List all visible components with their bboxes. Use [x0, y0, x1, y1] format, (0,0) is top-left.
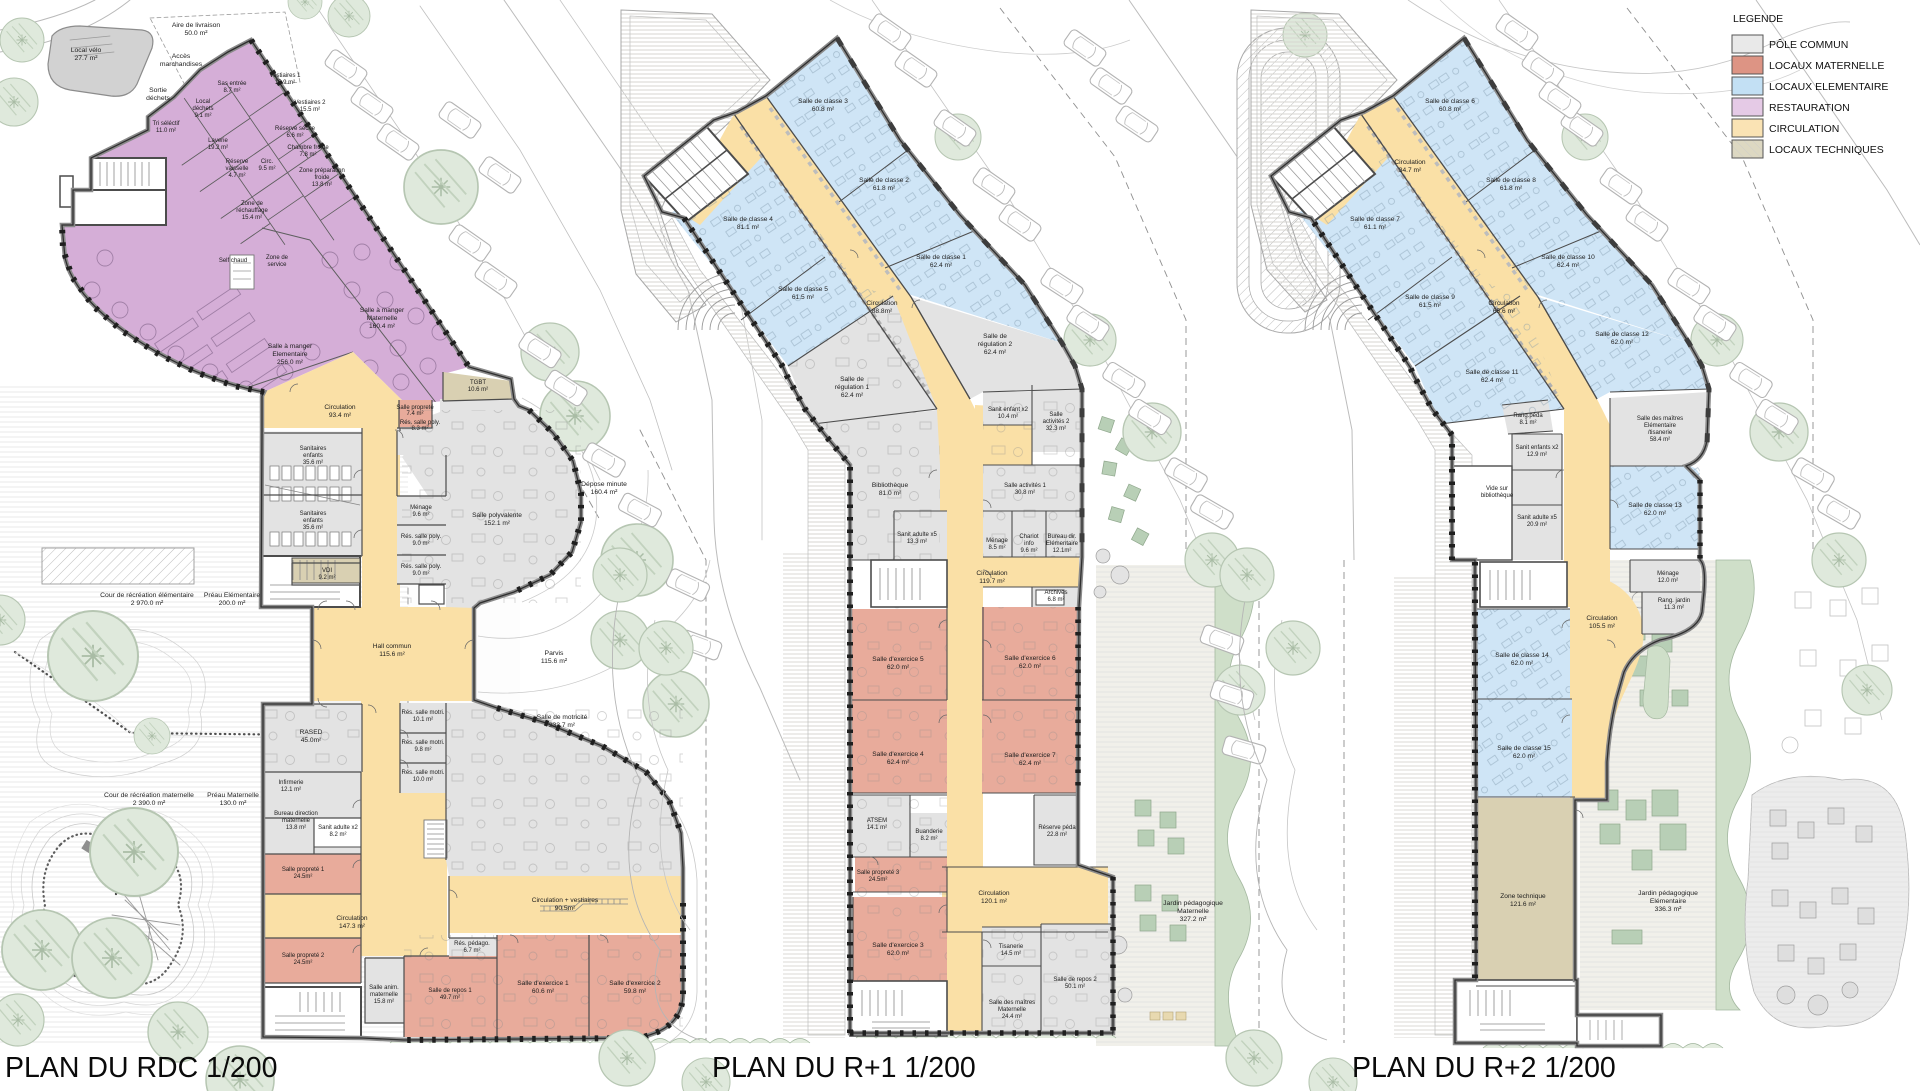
svg-text:Vestiaires 2: Vestiaires 2 [294, 100, 326, 106]
svg-text:Salle de classe 14: Salle de classe 14 [1495, 652, 1549, 659]
svg-text:CIRCULATION: CIRCULATION [1769, 123, 1839, 135]
svg-text:115.6 m²: 115.6 m² [379, 651, 405, 658]
svg-text:6.6 m²: 6.6 m² [286, 133, 303, 139]
svg-text:65.6 m²: 65.6 m² [1493, 308, 1516, 315]
svg-text:maternelle: maternelle [282, 818, 311, 824]
svg-text:Salle propreté 2: Salle propreté 2 [282, 953, 325, 959]
svg-text:Ménage: Ménage [986, 538, 1008, 544]
svg-text:62.0 m²: 62.0 m² [1611, 339, 1634, 346]
svg-text:10.4 m²: 10.4 m² [998, 414, 1018, 420]
svg-text:Salle des maîtres: Salle des maîtres [1637, 416, 1683, 422]
svg-text:27.7 m²: 27.7 m² [74, 55, 98, 62]
svg-text:32.3 m²: 32.3 m² [1046, 426, 1066, 432]
svg-text:Circulation: Circulation [336, 915, 367, 922]
svg-text:Rés. pédago.: Rés. pédago. [454, 941, 490, 947]
svg-text:147.3 m²: 147.3 m² [339, 923, 366, 930]
svg-text:Salle de classe 7: Salle de classe 7 [1350, 216, 1400, 223]
svg-text:200.0 m²: 200.0 m² [219, 600, 247, 607]
svg-text:62.4 m²: 62.4 m² [1481, 377, 1504, 384]
svg-text:9.2 m²: 9.2 m² [318, 575, 335, 581]
svg-text:120.1 m²: 120.1 m² [981, 898, 1008, 905]
svg-text:déchets: déchets [192, 106, 213, 112]
svg-text:maternelle: maternelle [370, 992, 399, 998]
svg-text:Accès: Accès [172, 53, 191, 60]
svg-text:8.1 m²: 8.1 m² [1519, 420, 1536, 426]
svg-text:62.4 m²: 62.4 m² [1557, 262, 1580, 269]
svg-text:RASED: RASED [300, 729, 323, 736]
svg-text:Bibliothèque: Bibliothèque [872, 482, 909, 489]
svg-text:service: service [267, 262, 287, 268]
svg-text:Circulation: Circulation [976, 570, 1007, 577]
svg-text:Sas entrée: Sas entrée [217, 81, 247, 87]
svg-text:14.1 m²: 14.1 m² [867, 825, 887, 831]
svg-text:327.2 m²: 327.2 m² [1180, 916, 1208, 923]
svg-text:13.3 m²: 13.3 m² [907, 539, 927, 545]
svg-text:Dépose minute: Dépose minute [581, 481, 627, 488]
svg-text:Salle d'exercice 2: Salle d'exercice 2 [609, 980, 661, 987]
svg-text:105.5 m²: 105.5 m² [1589, 623, 1616, 630]
svg-text:info: info [1024, 541, 1034, 547]
svg-text:activités 2: activités 2 [1043, 419, 1070, 425]
svg-text:Circulation: Circulation [1586, 615, 1617, 622]
svg-text:Préau Maternelle: Préau Maternelle [207, 792, 259, 799]
svg-text:Salle de classe 2: Salle de classe 2 [859, 177, 909, 184]
svg-text:12.1m²: 12.1m² [1053, 548, 1072, 554]
svg-text:PLAN DU R+1 1/200: PLAN DU R+1 1/200 [712, 1052, 976, 1084]
svg-text:Sanit adulte x2: Sanit adulte x2 [318, 825, 358, 831]
svg-text:11.3 m²: 11.3 m² [1664, 605, 1684, 611]
svg-text:froide: froide [314, 175, 330, 181]
svg-text:LEGENDE: LEGENDE [1733, 13, 1783, 25]
svg-text:bibliothèque: bibliothèque [1481, 493, 1514, 499]
svg-text:19.2 m²: 19.2 m² [208, 145, 228, 151]
svg-text:Salle activités 1: Salle activités 1 [1004, 483, 1046, 489]
svg-text:9.1 m²: 9.1 m² [194, 113, 211, 119]
svg-text:Salle à manger: Salle à manger [360, 307, 405, 314]
svg-text:Rés. salle motri.: Rés. salle motri. [401, 770, 444, 776]
svg-text:81.0 m²: 81.0 m² [879, 490, 902, 497]
svg-text:Parvis: Parvis [545, 650, 564, 657]
svg-text:ATSEM: ATSEM [867, 818, 887, 824]
svg-text:Zone de: Zone de [241, 201, 264, 207]
svg-text:Salle de classe 13: Salle de classe 13 [1628, 502, 1682, 509]
svg-text:VDI: VDI [322, 568, 332, 574]
svg-text:62.0 m²: 62.0 m² [1513, 753, 1536, 760]
svg-text:Salle d'exercice 1: Salle d'exercice 1 [517, 980, 569, 987]
svg-text:61.1 m²: 61.1 m² [1364, 224, 1387, 231]
svg-text:Vestiaires 1: Vestiaires 1 [269, 73, 301, 79]
svg-text:réchauffage: réchauffage [236, 208, 268, 214]
svg-text:Sanit adulte x5: Sanit adulte x5 [897, 532, 937, 538]
svg-text:9.6 m²: 9.6 m² [412, 512, 429, 518]
svg-text:61.8 m²: 61.8 m² [1500, 185, 1523, 192]
svg-text:Elémentaire: Elémentaire [1644, 423, 1677, 429]
svg-text:9.5 m²: 9.5 m² [258, 166, 275, 172]
svg-text:Sanitaires: Sanitaires [300, 446, 327, 452]
svg-text:Local vélo: Local vélo [71, 47, 102, 54]
svg-text:Hall commun: Hall commun [373, 643, 412, 650]
svg-text:Circulation: Circulation [866, 300, 897, 307]
svg-text:35.6 m²: 35.6 m² [303, 460, 323, 466]
svg-text:Salle anim.: Salle anim. [369, 985, 399, 991]
svg-text:Réserve séche: Réserve séche [275, 126, 316, 132]
svg-text:2 970.0 m²: 2 970.0 m² [131, 600, 164, 607]
svg-text:Salle de classe 8: Salle de classe 8 [1486, 177, 1536, 184]
svg-text:Vide sur: Vide sur [1486, 486, 1508, 492]
svg-text:10.0 m²: 10.0 m² [413, 777, 433, 783]
svg-text:59.8 m²: 59.8 m² [624, 988, 647, 995]
svg-text:13.8 m²: 13.8 m² [286, 825, 306, 831]
svg-text:Rés. salle motri.: Rés. salle motri. [401, 740, 444, 746]
svg-text:Elementaire: Elementaire [272, 351, 308, 358]
svg-text:62.0 m²: 62.0 m² [887, 950, 910, 957]
svg-text:50.1 m²: 50.1 m² [1065, 984, 1085, 990]
svg-text:81.1 m²: 81.1 m² [737, 224, 760, 231]
svg-text:15.8 m²: 15.8 m² [374, 999, 394, 1005]
svg-text:Elémentaire: Elémentaire [1650, 898, 1686, 905]
svg-text:9.0 m²: 9.0 m² [412, 541, 429, 547]
svg-text:Salle de classe 4: Salle de classe 4 [723, 216, 773, 223]
svg-text:2 390.0 m²: 2 390.0 m² [133, 800, 166, 807]
svg-text:34.7 m²: 34.7 m² [1399, 167, 1422, 174]
svg-text:10.1 m²: 10.1 m² [413, 717, 433, 723]
svg-text:Maternelle: Maternelle [1177, 908, 1209, 915]
svg-text:Salle d'exercice 4: Salle d'exercice 4 [872, 751, 924, 758]
svg-text:256.0 m²: 256.0 m² [277, 359, 304, 366]
svg-text:Bureau dir.: Bureau dir. [1047, 534, 1076, 540]
svg-text:62.0 m²: 62.0 m² [887, 664, 910, 671]
svg-text:Buanderie: Buanderie [915, 829, 943, 835]
svg-text:121.6 m²: 121.6 m² [1510, 901, 1537, 908]
svg-text:Rés. salle poly.: Rés. salle poly. [401, 564, 442, 570]
svg-text:9.6 m²: 9.6 m² [1020, 548, 1037, 554]
svg-text:12.9 m²: 12.9 m² [1527, 452, 1547, 458]
svg-text:6.7 m²: 6.7 m² [463, 948, 480, 954]
svg-text:Local: Local [196, 99, 210, 105]
svg-text:PLAN DU RDC 1/200: PLAN DU RDC 1/200 [5, 1052, 277, 1084]
svg-text:Sanit enfant x2: Sanit enfant x2 [988, 407, 1029, 413]
svg-text:35.6 m²: 35.6 m² [303, 525, 323, 531]
svg-text:Salle de classe 9: Salle de classe 9 [1405, 294, 1455, 301]
svg-text:60.8 m²: 60.8 m² [1439, 106, 1462, 113]
svg-text:Zone technique: Zone technique [1500, 893, 1546, 900]
svg-text:Circulation: Circulation [978, 890, 1009, 897]
svg-text:Réserve péda: Réserve péda [1038, 825, 1076, 831]
svg-text:49.7 m²: 49.7 m² [440, 995, 460, 1001]
svg-text:Rang.péda: Rang.péda [1513, 413, 1543, 419]
svg-text:Laverie: Laverie [208, 138, 228, 144]
svg-text:119.7 m²: 119.7 m² [979, 578, 1005, 585]
svg-text:Salle de repos 2: Salle de repos 2 [1053, 977, 1097, 983]
svg-text:Rés. salle poly.: Rés. salle poly. [401, 534, 442, 540]
svg-text:Infirmerie: Infirmerie [278, 780, 304, 786]
svg-text:62.4 m²: 62.4 m² [887, 759, 910, 766]
svg-text:Circulation: Circulation [1488, 300, 1519, 307]
svg-text:4.7 m²: 4.7 m² [228, 173, 245, 179]
svg-text:Chambre froide: Chambre froide [287, 145, 329, 151]
svg-text:8.3 m²: 8.3 m² [411, 426, 428, 432]
svg-text:Salle: Salle [1049, 412, 1063, 418]
svg-text:8.7 m²: 8.7 m² [223, 88, 240, 94]
svg-text:45.0m²: 45.0m² [301, 737, 322, 744]
svg-text:Rang. jardin: Rang. jardin [1658, 598, 1690, 604]
svg-text:Salle de classe 15: Salle de classe 15 [1497, 745, 1551, 752]
svg-text:Jardin pédagogique: Jardin pédagogique [1638, 890, 1698, 897]
svg-text:Salle propreté 3: Salle propreté 3 [857, 870, 900, 876]
svg-text:8.2 m²: 8.2 m² [920, 836, 937, 842]
svg-text:Salle de repos 1: Salle de repos 1 [428, 988, 472, 994]
svg-text:8.2 m²: 8.2 m² [329, 832, 346, 838]
svg-text:Circulation: Circulation [1394, 159, 1425, 166]
svg-text:Salle de classe 10: Salle de classe 10 [1541, 254, 1595, 261]
svg-text:24.5m²: 24.5m² [294, 874, 313, 880]
svg-text:RESTAURATION: RESTAURATION [1769, 102, 1850, 114]
svg-text:Salle de: Salle de [840, 376, 864, 383]
svg-text:Salle polyvalente: Salle polyvalente [472, 512, 522, 519]
svg-text:130.0 m²: 130.0 m² [220, 800, 248, 807]
svg-text:62.4 m²: 62.4 m² [930, 262, 953, 269]
svg-text:Salle de classe 1: Salle de classe 1 [916, 254, 966, 261]
svg-text:régulation 2: régulation 2 [978, 341, 1013, 348]
svg-text:22.8 m²: 22.8 m² [1047, 832, 1067, 838]
svg-text:152.1 m²: 152.1 m² [484, 520, 511, 527]
svg-text:Zone de: Zone de [266, 255, 289, 261]
svg-text:15.5 m²: 15.5 m² [300, 107, 320, 113]
svg-text:336.3 m²: 336.3 m² [1655, 906, 1683, 913]
svg-text:160.4 m²: 160.4 m² [591, 489, 619, 496]
svg-text:24.5m²: 24.5m² [869, 877, 888, 883]
svg-text:Chariot: Chariot [1019, 534, 1039, 540]
svg-text:Ménage: Ménage [1657, 571, 1679, 577]
svg-text:12.1 m²: 12.1 m² [281, 787, 301, 793]
svg-text:Circulation: Circulation [324, 404, 355, 411]
svg-text:9.0 m²: 9.0 m² [412, 571, 429, 577]
svg-text:62.4 m²: 62.4 m² [984, 349, 1007, 356]
svg-text:Sanit enfants x2: Sanit enfants x2 [1515, 445, 1559, 451]
svg-text:Sortie: Sortie [149, 87, 167, 94]
svg-text:61.8 m²: 61.8 m² [873, 185, 896, 192]
svg-text:61.5 m²: 61.5 m² [1419, 302, 1442, 309]
svg-text:Cour de récréation maternelle: Cour de récréation maternelle [104, 792, 194, 799]
svg-text:marchandises: marchandises [160, 61, 203, 68]
svg-text:115.6 m²: 115.6 m² [541, 658, 568, 665]
svg-text:Salle d'exercice 7: Salle d'exercice 7 [1004, 752, 1056, 759]
svg-text:12.0 m²: 12.0 m² [1658, 578, 1678, 584]
svg-text:62.4 m²: 62.4 m² [841, 392, 864, 399]
svg-text:11.0 m²: 11.0 m² [156, 128, 176, 134]
svg-text:9.8 m²: 9.8 m² [414, 747, 431, 753]
svg-text:50.0 m²: 50.0 m² [184, 30, 208, 37]
svg-text:61.5 m²: 61.5 m² [792, 294, 815, 301]
svg-text:Self chaud: Self chaud [219, 258, 247, 264]
svg-text:PÔLE COMMUN: PÔLE COMMUN [1769, 38, 1848, 51]
svg-text:Tri séléctif: Tri séléctif [152, 121, 179, 127]
svg-text:Sanit adulte x5: Sanit adulte x5 [1517, 515, 1557, 521]
svg-text:LOCAUX MATERNELLE: LOCAUX MATERNELLE [1769, 60, 1884, 72]
svg-text:6.8 m²: 6.8 m² [1047, 597, 1064, 603]
svg-text:8.5 m²: 8.5 m² [988, 545, 1005, 551]
svg-text:Salle de classe 12: Salle de classe 12 [1595, 331, 1649, 338]
svg-text:enfants: enfants [303, 453, 323, 459]
svg-text:Salle d'exercice 3: Salle d'exercice 3 [872, 942, 924, 949]
svg-text:Salle de classe 6: Salle de classe 6 [1425, 98, 1475, 105]
svg-text:Salle de classe 3: Salle de classe 3 [798, 98, 848, 105]
svg-text:Maternelle: Maternelle [998, 1007, 1027, 1013]
svg-text:TGBT: TGBT [470, 380, 486, 386]
svg-text:Maternelle: Maternelle [367, 315, 398, 322]
svg-text:233.7 m²: 233.7 m² [549, 722, 576, 729]
svg-text:Jardin pédagogique: Jardin pédagogique [1163, 900, 1223, 907]
svg-text:62.0 m²: 62.0 m² [1019, 663, 1042, 670]
svg-text:30.8 m²: 30.8 m² [1015, 490, 1035, 496]
svg-text:LOCAUX ELEMENTAIRE: LOCAUX ELEMENTAIRE [1769, 81, 1888, 93]
svg-text:vaisselle: vaisselle [225, 166, 249, 172]
svg-text:régulation 1: régulation 1 [835, 384, 870, 391]
svg-text:15.4 m²: 15.4 m² [242, 215, 262, 221]
svg-text:déchets: déchets [146, 95, 170, 102]
svg-text:15.9 m²: 15.9 m² [275, 80, 295, 86]
svg-text:Salle propreté 1: Salle propreté 1 [282, 867, 325, 873]
svg-text:60.6 m²: 60.6 m² [532, 988, 555, 995]
svg-text:20.9 m²: 20.9 m² [1527, 522, 1547, 528]
svg-text:14.5 m²: 14.5 m² [1001, 951, 1021, 957]
svg-text:Rés. salle motri.: Rés. salle motri. [401, 710, 444, 716]
svg-text:Cour de récréation élémentaire: Cour de récréation élémentaire [100, 592, 194, 599]
svg-text:Zone préparation: Zone préparation [299, 168, 345, 174]
svg-text:Aire de livraison: Aire de livraison [172, 22, 221, 29]
svg-text:10.6 m²: 10.6 m² [468, 387, 488, 393]
svg-text:PLAN DU R+2 1/200: PLAN DU R+2 1/200 [1352, 1052, 1616, 1084]
svg-text:Archives: Archives [1044, 590, 1067, 596]
svg-text:Sanitaires: Sanitaires [300, 511, 327, 517]
svg-text:enfants: enfants [303, 518, 323, 524]
svg-text:88.8m²: 88.8m² [872, 308, 893, 315]
svg-text:Elémentaire: Elémentaire [1046, 541, 1079, 547]
svg-text:7.8 m²: 7.8 m² [299, 152, 316, 158]
svg-text:Circulation + vestiaires: Circulation + vestiaires [532, 897, 599, 904]
svg-text:Bureau direction: Bureau direction [274, 811, 318, 817]
svg-text:13.8 m²: 13.8 m² [312, 182, 332, 188]
svg-text:7.4 m²: 7.4 m² [406, 411, 423, 417]
svg-text:Salle de classe 5: Salle de classe 5 [778, 286, 828, 293]
svg-text:60.8 m²: 60.8 m² [812, 106, 835, 113]
svg-text:Salle à manger: Salle à manger [268, 343, 313, 350]
svg-text:Préau Elémentaire: Préau Elémentaire [204, 592, 261, 599]
svg-text:Réserve: Réserve [226, 159, 249, 165]
svg-text:Salle de classe 11: Salle de classe 11 [1465, 369, 1518, 376]
svg-text:62.4 m²: 62.4 m² [1019, 760, 1042, 767]
svg-text:Salle d'exercice 6: Salle d'exercice 6 [1004, 655, 1056, 662]
svg-text:24.4 m²: 24.4 m² [1002, 1014, 1022, 1020]
svg-text:Circ.: Circ. [261, 159, 274, 165]
svg-text:Salle de: Salle de [983, 333, 1007, 340]
svg-text:90.5m²: 90.5m² [555, 905, 576, 912]
svg-text:/tisanerie: /tisanerie [1648, 430, 1673, 436]
svg-text:LOCAUX TECHNIQUES: LOCAUX TECHNIQUES [1769, 144, 1884, 156]
svg-text:Tisanerie: Tisanerie [999, 944, 1024, 950]
svg-text:Salle de motricité: Salle de motricité [537, 714, 588, 721]
svg-text:160.4 m²: 160.4 m² [369, 323, 396, 330]
svg-text:24.5m²: 24.5m² [294, 960, 313, 966]
svg-text:Salle d'exercice 5: Salle d'exercice 5 [872, 656, 924, 663]
svg-text:62.0 m²: 62.0 m² [1511, 660, 1534, 667]
svg-text:Ménage: Ménage [410, 505, 432, 511]
svg-text:62.0 m²: 62.0 m² [1644, 510, 1667, 517]
svg-text:93.4 m²: 93.4 m² [329, 412, 352, 419]
svg-text:58.4 m²: 58.4 m² [1650, 437, 1670, 443]
svg-text:Salle des maîtres: Salle des maîtres [989, 1000, 1035, 1006]
